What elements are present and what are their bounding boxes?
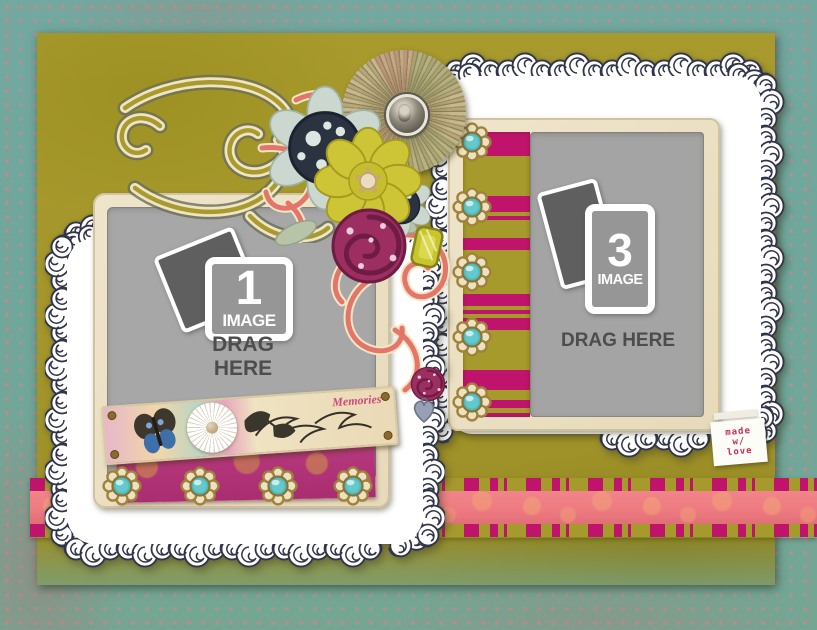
portrait-button-icon bbox=[386, 94, 428, 136]
image-count-unit: IMAGE bbox=[597, 272, 642, 288]
floral-etching bbox=[254, 410, 372, 446]
made-with-love-tag: made w/ love bbox=[710, 418, 768, 467]
image-count-box: 3 IMAGE bbox=[585, 204, 655, 314]
drag-here-label-right: DRAG HERE bbox=[558, 330, 678, 352]
tag-line: love bbox=[727, 446, 753, 458]
image-count-unit: IMAGE bbox=[222, 311, 275, 331]
etched-lily bbox=[244, 409, 296, 441]
flower-brads-column bbox=[448, 118, 500, 431]
photo-frame-right: 3 IMAGE DRAG HERE bbox=[448, 118, 720, 431]
image-count-box: 1 IMAGE bbox=[205, 257, 293, 341]
photo-frame-left: 1 IMAGE DRAG HERE bbox=[93, 193, 390, 508]
drag-here-label-left: DRAG HERE bbox=[181, 333, 305, 381]
photo-stack-icon: 3 IMAGE bbox=[544, 178, 664, 318]
fan-rosette-icon bbox=[342, 50, 466, 174]
scrapbook-template-canvas: 3 IMAGE DRAG HERE bbox=[0, 0, 817, 630]
image-count-number: 1 bbox=[236, 267, 263, 310]
butterfly-icon bbox=[131, 406, 183, 457]
flower-brads-row bbox=[93, 456, 390, 516]
image-count-number: 3 bbox=[607, 230, 633, 271]
